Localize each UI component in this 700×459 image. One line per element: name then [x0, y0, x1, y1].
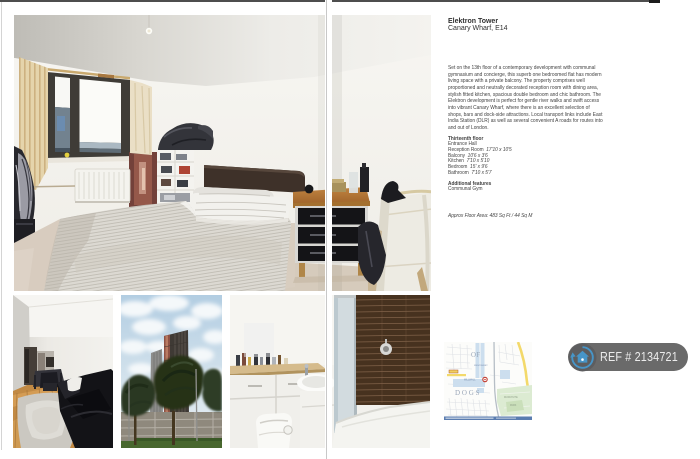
svg-text:OF: OF — [471, 352, 481, 359]
svg-text:DOGS: DOGS — [455, 389, 481, 397]
svg-text:MUDCHUTE: MUDCHUTE — [504, 396, 518, 399]
svg-text:WESTFERRY: WESTFERRY — [474, 365, 488, 367]
svg-text:MILLWALL: MILLWALL — [464, 379, 476, 382]
svg-text:PARK: PARK — [510, 404, 517, 407]
